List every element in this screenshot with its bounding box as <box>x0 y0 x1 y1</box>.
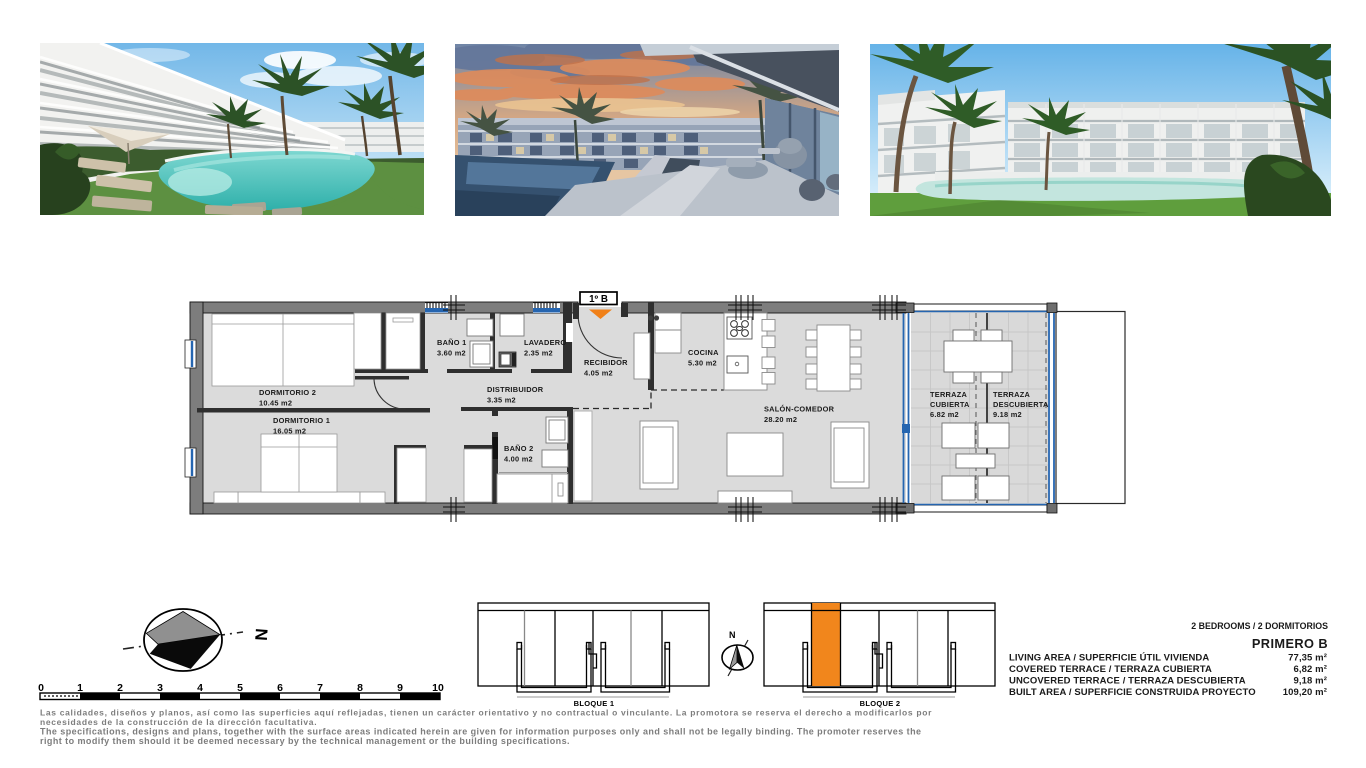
svg-text:COVERED TERRACE / TERRAZA CUBI: COVERED TERRACE / TERRAZA CUBIERTA <box>1009 664 1212 675</box>
svg-text:10: 10 <box>432 682 444 694</box>
svg-text:The specifications, designs an: The specifications, designs and plans, t… <box>40 727 921 737</box>
svg-text:77,35 m²: 77,35 m² <box>1288 653 1327 664</box>
svg-text:2.35 m2: 2.35 m2 <box>524 349 553 358</box>
svg-text:LIVING AREA / SUPERFICIE ÚTIL: LIVING AREA / SUPERFICIE ÚTIL VIVIENDA <box>1009 652 1209 664</box>
svg-text:CUBIERTA: CUBIERTA <box>930 400 970 409</box>
svg-text:9,18 m²: 9,18 m² <box>1294 676 1327 687</box>
svg-text:6.82 m2: 6.82 m2 <box>930 410 959 419</box>
svg-text:DISTRIBUIDOR: DISTRIBUIDOR <box>487 385 544 394</box>
svg-text:7: 7 <box>317 682 323 694</box>
svg-text:0: 0 <box>38 682 44 694</box>
svg-text:109,20 m²: 109,20 m² <box>1283 687 1327 698</box>
svg-text:BUILT AREA / SUPERFICIE CONSTR: BUILT AREA / SUPERFICIE CONSTRUIDA PROYE… <box>1009 687 1256 698</box>
svg-text:28.20 m2: 28.20 m2 <box>764 415 797 424</box>
svg-text:6,82 m²: 6,82 m² <box>1294 664 1327 675</box>
svg-text:3.35 m2: 3.35 m2 <box>487 396 516 405</box>
svg-text:5: 5 <box>237 682 243 694</box>
svg-text:UNCOVERED TERRACE / TERRAZA DE: UNCOVERED TERRACE / TERRAZA DESCUBIERTA <box>1009 676 1246 687</box>
svg-text:4: 4 <box>197 682 203 694</box>
svg-text:8: 8 <box>357 682 363 694</box>
svg-text:Las calidades, diseños y plano: Las calidades, diseños y planos, así com… <box>40 708 932 718</box>
svg-text:right to modify them should it: right to modify them should it be deemed… <box>40 736 570 746</box>
svg-text:TERRAZA: TERRAZA <box>930 390 967 399</box>
svg-text:2: 2 <box>117 682 123 694</box>
svg-text:DORMITORIO 2: DORMITORIO 2 <box>259 388 316 397</box>
svg-text:9.18 m2: 9.18 m2 <box>993 410 1022 419</box>
svg-text:1: 1 <box>77 682 83 694</box>
svg-text:SALÓN-COMEDOR: SALÓN-COMEDOR <box>764 405 835 414</box>
svg-text:4.05 m2: 4.05 m2 <box>584 369 613 378</box>
svg-text:necesidades de la construcción: necesidades de la construcción de la dir… <box>40 717 317 727</box>
svg-text:DESCUBIERTA: DESCUBIERTA <box>993 400 1049 409</box>
svg-text:10.45 m2: 10.45 m2 <box>259 399 292 408</box>
svg-text:N: N <box>729 630 736 640</box>
svg-text:BAÑO 1: BAÑO 1 <box>437 338 466 347</box>
svg-text:4.00 m2: 4.00 m2 <box>504 455 533 464</box>
svg-text:3: 3 <box>157 682 163 694</box>
svg-text:1º B: 1º B <box>589 294 608 305</box>
svg-text:9: 9 <box>397 682 403 694</box>
svg-text:TERRAZA: TERRAZA <box>993 390 1030 399</box>
svg-text:N: N <box>251 628 271 642</box>
svg-text:PRIMERO B: PRIMERO B <box>1252 636 1328 651</box>
svg-text:5.30 m2: 5.30 m2 <box>688 359 717 368</box>
svg-text:BAÑO 2: BAÑO 2 <box>504 444 533 453</box>
svg-text:DORMITORIO 1: DORMITORIO 1 <box>273 416 330 425</box>
svg-text:6: 6 <box>277 682 283 694</box>
svg-text:16.05 m2: 16.05 m2 <box>273 427 306 436</box>
svg-text:2 BEDROOMS / 2 DORMITORIOS: 2 BEDROOMS / 2 DORMITORIOS <box>1191 621 1328 631</box>
svg-text:3.60 m2: 3.60 m2 <box>437 349 466 358</box>
svg-text:RECIBIDOR: RECIBIDOR <box>584 358 628 367</box>
svg-text:COCINA: COCINA <box>688 348 719 357</box>
svg-text:LAVADERO: LAVADERO <box>524 338 566 347</box>
